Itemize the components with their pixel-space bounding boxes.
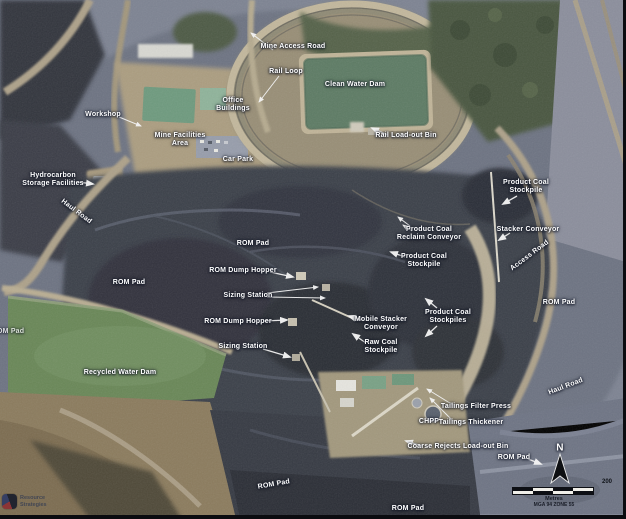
leader-hydrocarbon — [78, 182, 93, 184]
leader-raw-coal — [353, 334, 366, 343]
leader-rom-pad-southeast — [528, 459, 541, 464]
annotated-aerial-mine-map: Mine Access Road Rail Loop Clean Water D… — [0, 0, 626, 519]
leader-product-coal-central — [391, 252, 405, 257]
leader-sizing-station-north-2 — [267, 297, 325, 298]
scale-bar: 200 Metres MGA 94 ZONE 55 — [512, 479, 596, 508]
leader-reclaim-conveyor-2 — [403, 225, 412, 231]
leader-tailings-filter-press — [427, 389, 453, 405]
leader-rom-dump-hopper-south — [264, 320, 287, 321]
leader-rail-loop — [259, 76, 279, 102]
logo-icon — [2, 494, 17, 509]
leader-mobile-stacker — [349, 316, 361, 320]
leader-rom-dump-hopper-north — [270, 272, 293, 277]
leader-tailings-thickener — [430, 398, 453, 421]
leader-reclaim-conveyor-1 — [398, 217, 410, 226]
leader-mine-access-road — [251, 33, 273, 50]
leader-coarse-rejects — [406, 441, 422, 446]
leader-rail-load-out-bin — [372, 128, 388, 135]
scale-end-value: 200 — [602, 479, 612, 485]
logo-line2: Strategies — [20, 502, 47, 508]
scale-datum: MGA 94 ZONE 55 — [512, 502, 596, 508]
resource-strategies-logo: Resource Strategies — [2, 494, 47, 509]
leader-stacker-conveyor — [499, 233, 510, 240]
leader-workshop — [119, 117, 141, 126]
leader-product-stockpiles-2 — [426, 326, 437, 336]
logo-line1: Resource — [20, 495, 47, 501]
leader-product-coal-east — [503, 196, 517, 204]
leader-product-stockpiles-1 — [426, 299, 437, 308]
scale-bar-segments — [512, 487, 594, 495]
leader-lines — [0, 0, 626, 519]
leader-sizing-station-south — [263, 349, 290, 357]
leader-sizing-station-north-1 — [267, 287, 318, 293]
